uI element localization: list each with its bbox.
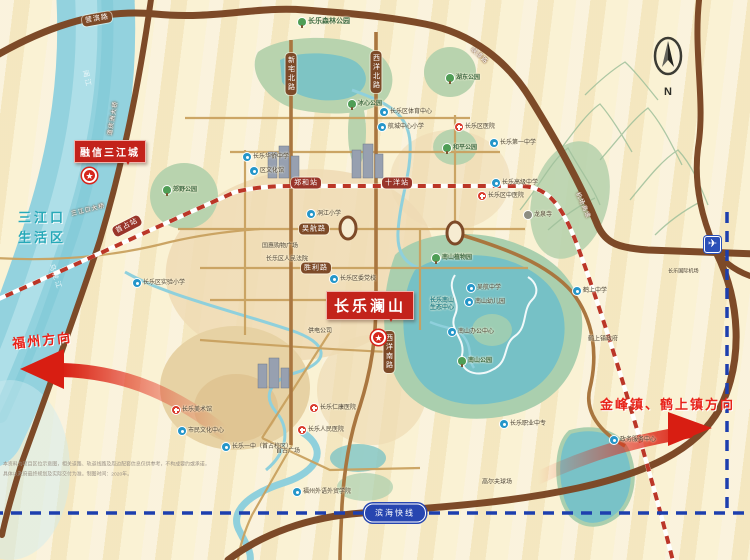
- poi-text: 洞江小学: [317, 211, 341, 218]
- poi-school: 吴航中学: [467, 284, 501, 292]
- text-small-label: 具体以政府最终规划及实际交付为准。制图时间：2020年。: [3, 470, 132, 477]
- poi-school: 南山幼儿园: [465, 298, 505, 306]
- school-icon: [610, 436, 618, 444]
- poi-school: 政务服务中心: [610, 436, 656, 444]
- poi-text: 长乐仁康医院: [320, 405, 356, 412]
- school-icon: [250, 167, 258, 175]
- poi-text: 南山幼儿园: [475, 299, 505, 306]
- poi-school: 长乐区体育中心: [380, 108, 432, 116]
- poi-text: 长乐高级中学: [502, 180, 538, 187]
- school-icon: [178, 427, 186, 435]
- text-water-label: 乌龙江: [47, 263, 65, 292]
- poi-hospital: 长乐美术馆: [172, 406, 212, 414]
- road-name-label: 新宅北路: [286, 53, 297, 95]
- poi-tree: 南山公园: [458, 357, 492, 365]
- poi-text: 高尔夫球场: [482, 480, 512, 487]
- poi-school: 福州外语外贸学院: [293, 488, 351, 496]
- poi-text: 长乐森林公园: [308, 18, 350, 26]
- secondary-project-label: 融信三江城: [74, 140, 146, 163]
- poi-school: 长乐职业中专: [500, 420, 546, 428]
- poi-text: 供电公司: [308, 329, 332, 336]
- poi-text: 市民文化中心: [188, 428, 224, 435]
- airplane-icon: ✈: [708, 238, 717, 250]
- metro-station-label: 郑和站: [291, 178, 321, 189]
- poi-tree: 长乐森林公园: [298, 18, 350, 26]
- compass-icon: [650, 34, 686, 80]
- on-road-label: 三江口大桥: [70, 200, 106, 217]
- hospital-icon: [310, 404, 318, 412]
- map-canvas: { "project": { "name": "长乐澜山", "secondar…: [0, 0, 750, 560]
- text-water-label: 闽江: [80, 69, 94, 89]
- poi-label: 鹤上镇政府: [588, 337, 618, 344]
- poi-tree: 南山植物园: [432, 254, 472, 262]
- poi-text: 湖东公园: [456, 75, 480, 82]
- on-road-label: 机场高速: [574, 190, 594, 219]
- poi-text: 南山植物园: [442, 255, 472, 262]
- road-name-label: 吴航路: [299, 224, 329, 235]
- text-district-label: 三江口 生活区: [18, 208, 66, 247]
- poi-text: 鹤上中学: [583, 288, 607, 295]
- text-small-label: 本资料为项目区位示意图，相关道路、轨道线路及周边配套信息仅供参考，不构成要约或承…: [3, 460, 210, 467]
- text-dir-label: 福州方向: [11, 327, 73, 352]
- poi-text: 长乐人民医院: [308, 427, 344, 434]
- poi-label: 国惠购物广场: [262, 244, 298, 251]
- school-icon: [500, 420, 508, 428]
- school-icon: [492, 179, 500, 187]
- poi-text: 长乐美术馆: [182, 407, 212, 414]
- school-icon: [133, 279, 141, 287]
- on-road-label: 峡漳路: [469, 45, 491, 66]
- map-labels: 新宅北路西洋北路西洋南路吴航路胜利路营滨路郑和站十洋站首占站峡漳路机场高速三江口…: [0, 0, 750, 560]
- tree-icon: [446, 74, 454, 82]
- poi-text: 郊野公园: [173, 187, 197, 194]
- poi-text: 区文化馆: [260, 168, 284, 175]
- poi-hospital: 长乐区医院: [455, 123, 495, 131]
- poi-school: 南山办公中心: [448, 328, 494, 336]
- poi-text: 南山公园: [468, 358, 492, 365]
- poi-text: 福州外语外贸学院: [303, 489, 351, 496]
- binhai-line-label: 滨海快线: [364, 504, 426, 523]
- poi-text: 政务服务中心: [620, 437, 656, 444]
- poi-school: 鹤上中学: [573, 287, 607, 295]
- metro-station-label: 首占站: [111, 214, 143, 237]
- project-star-icon: ★: [371, 330, 386, 345]
- tree-icon: [163, 186, 171, 194]
- hospital-icon: [455, 123, 463, 131]
- hospital-icon: [172, 406, 180, 414]
- road-name-label: 胜利路: [301, 263, 331, 274]
- poi-text: 和平公园: [453, 145, 477, 152]
- poi-tree: 和平公园: [443, 144, 477, 152]
- poi-tree: 湖东公园: [446, 74, 480, 82]
- tree-icon: [458, 357, 466, 365]
- poi-label: 高尔夫球场: [482, 480, 512, 487]
- tree-icon: [298, 18, 306, 26]
- poi-school: 长乐高级中学: [492, 179, 538, 187]
- poi-text: 龙泉寺: [534, 212, 552, 219]
- school-icon: [293, 488, 301, 496]
- poi-text: 长乐区医院: [465, 124, 495, 131]
- poi-text: 长乐区人民法院: [266, 257, 308, 264]
- road-name-label: 营滨路: [81, 11, 112, 27]
- poi-label: 首占广场: [276, 449, 300, 456]
- poi-hospital: 长乐仁康医院: [310, 404, 356, 412]
- poi-label: 供电公司: [308, 329, 332, 336]
- school-icon: [448, 328, 456, 336]
- poi-text: 长乐区中医院: [488, 193, 524, 200]
- poi-school: 长乐区实验小学: [133, 279, 185, 287]
- school-icon: [380, 108, 388, 116]
- poi-text: 南山办公中心: [458, 329, 494, 336]
- poi-text: 长乐南山 生态中心: [430, 298, 454, 312]
- poi-text: 长乐区委党校: [340, 276, 376, 283]
- poi-school: 市民文化中心: [178, 427, 224, 435]
- text-tiny-label: 长乐国际机场: [668, 267, 699, 275]
- poi-hospital: 长乐人民医院: [298, 426, 344, 434]
- poi-text: 长乐职业中专: [510, 421, 546, 428]
- school-icon: [243, 153, 251, 161]
- poi-text: 国惠购物广场: [262, 244, 298, 251]
- on-road-label: 道庆洲大桥: [105, 100, 120, 136]
- poi-text: 长乐区体育中心: [390, 109, 432, 116]
- poi-text: 长乐华侨中学: [253, 154, 289, 161]
- secondary-project-star-icon: ★: [82, 168, 97, 183]
- poi-label: 长乐区人民法院: [266, 257, 308, 264]
- text-dir-label: 金峰镇、鹤上镇方向: [600, 394, 735, 413]
- airport-icon: ✈: [704, 236, 721, 253]
- tree-icon: [348, 100, 356, 108]
- school-icon: [467, 284, 475, 292]
- poi-text: 吴航中学: [477, 285, 501, 292]
- poi-hospital: 长乐区中医院: [478, 192, 524, 200]
- poi-school: 洞江小学: [307, 210, 341, 218]
- project-marker-label: 长乐澜山: [326, 291, 414, 320]
- school-icon: [378, 123, 386, 131]
- compass: N: [648, 34, 688, 100]
- poi-text: 长乐第一中学: [500, 140, 536, 147]
- metro-station-label: 十洋站: [382, 178, 412, 189]
- poi-temple: 龙泉寺: [524, 211, 552, 219]
- school-icon: [490, 139, 498, 147]
- poi-tree: 冰心公园: [348, 100, 382, 108]
- hospital-icon: [298, 426, 306, 434]
- temple-icon: [524, 211, 532, 219]
- tree-icon: [443, 144, 451, 152]
- poi-text: 首占广场: [276, 449, 300, 456]
- poi-school: 长乐第一中学: [490, 139, 536, 147]
- poi-text: 航城中心小学: [388, 124, 424, 131]
- poi-school: 区文化馆: [250, 167, 284, 175]
- hospital-icon: [478, 192, 486, 200]
- school-icon: [307, 210, 315, 218]
- school-icon: [330, 275, 338, 283]
- poi-school: 长乐区委党校: [330, 275, 376, 283]
- poi-text: 冰心公园: [358, 101, 382, 108]
- road-name-label: 西洋北路: [371, 51, 382, 93]
- compass-north-label: N: [648, 86, 688, 98]
- poi-tree: 郊野公园: [163, 186, 197, 194]
- poi-school: 长乐华侨中学: [243, 153, 289, 161]
- poi-text: 鹤上镇政府: [588, 337, 618, 344]
- school-icon: [573, 287, 581, 295]
- tree-icon: [432, 254, 440, 262]
- school-icon: [465, 298, 473, 306]
- poi-text: 长乐区实验小学: [143, 280, 185, 287]
- poi-school: 航城中心小学: [378, 123, 424, 131]
- school-icon: [222, 443, 230, 451]
- poi-label: 长乐南山 生态中心: [430, 298, 454, 312]
